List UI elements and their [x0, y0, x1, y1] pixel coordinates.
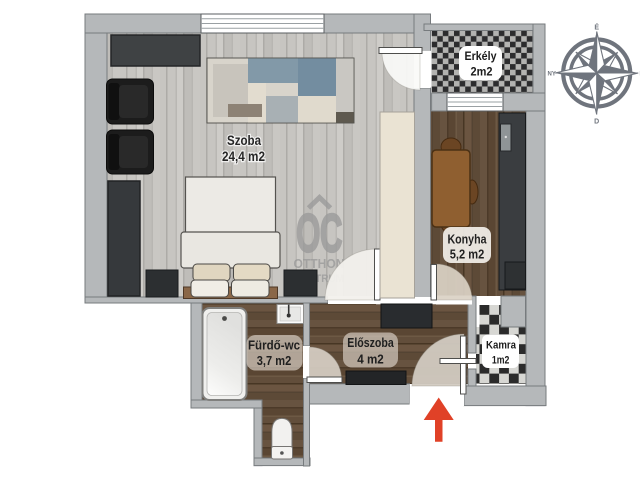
svg-text:3,7 m2: 3,7 m2 — [257, 353, 292, 368]
svg-text:1m2: 1m2 — [492, 354, 510, 366]
svg-text:Kamra: Kamra — [486, 339, 517, 351]
svg-text:2m2: 2m2 — [471, 64, 493, 78]
svg-text:D: D — [594, 119, 599, 126]
svg-text:É: É — [594, 23, 599, 32]
svg-text:NY: NY — [548, 72, 556, 78]
svg-text:Szoba: Szoba — [227, 132, 261, 148]
svg-text:4 m2: 4 m2 — [357, 351, 384, 366]
svg-text:5,2 m2: 5,2 m2 — [450, 247, 485, 262]
svg-text:OC: OC — [296, 204, 342, 264]
svg-text:Fürdő-wc: Fürdő-wc — [248, 338, 300, 353]
svg-text:Előszoba: Előszoba — [347, 336, 394, 350]
svg-text:Konyha: Konyha — [448, 231, 488, 246]
svg-text:Erkély: Erkély — [465, 49, 497, 63]
svg-text:24,4 m2: 24,4 m2 — [222, 148, 265, 164]
